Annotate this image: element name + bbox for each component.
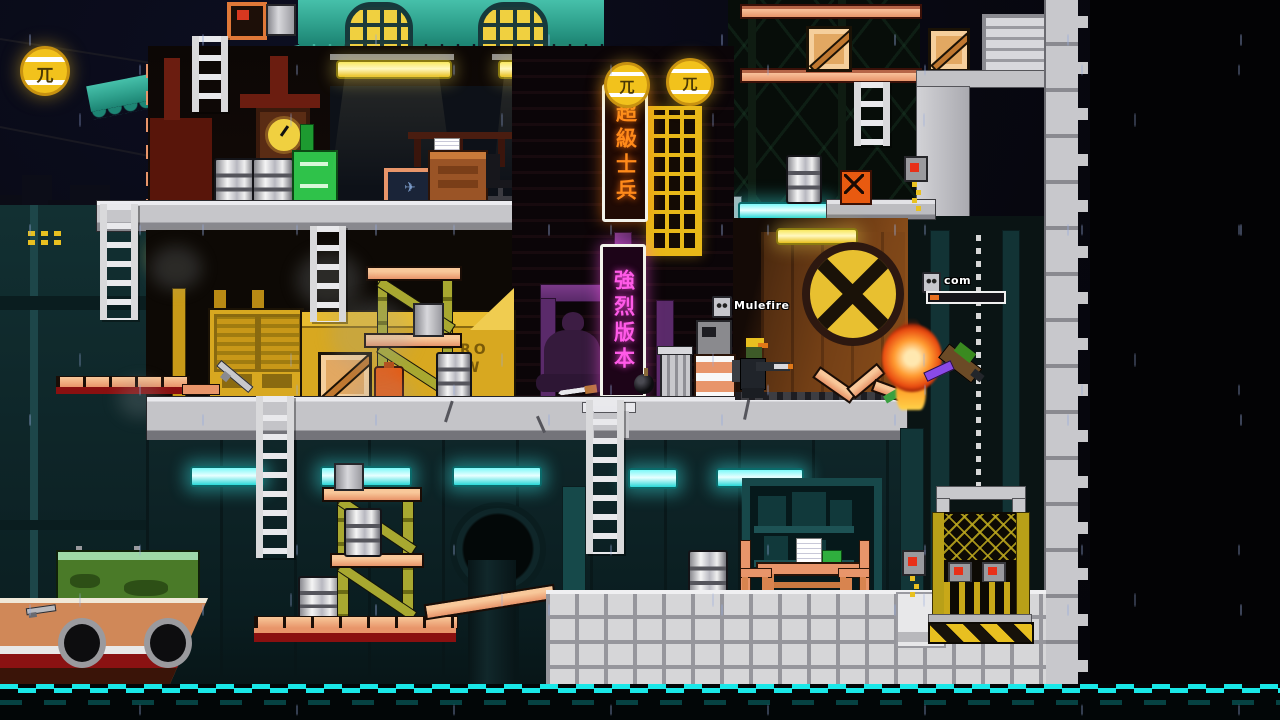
jerry-can <box>840 170 872 205</box>
vent-chimney <box>214 290 226 308</box>
boat <box>0 544 210 692</box>
desk <box>428 150 488 206</box>
rank-badge-icon <box>712 296 732 318</box>
cage-light-bezel <box>948 562 972 583</box>
explosion <box>882 324 942 392</box>
lantern-sign: 兀 <box>20 46 70 96</box>
player-legs <box>742 388 764 398</box>
ladder[interactable] <box>586 400 624 554</box>
cage-bars <box>944 582 1016 614</box>
ladder[interactable] <box>854 82 890 146</box>
ladder[interactable] <box>100 204 138 320</box>
desk-drawer <box>438 166 478 174</box>
rank-badge-icon <box>922 272 941 293</box>
clock-hand <box>280 125 289 137</box>
barrel <box>786 155 822 204</box>
deck-edge <box>0 598 208 603</box>
lattice-window <box>646 106 702 256</box>
lantern-glyph: 兀 <box>23 61 67 86</box>
red-button[interactable] <box>902 550 926 576</box>
stone-column <box>1044 0 1078 690</box>
shelf-box <box>758 496 786 526</box>
desk-drawer <box>438 180 478 188</box>
red-button-cap <box>908 557 917 566</box>
statue-head <box>562 312 584 332</box>
trash-bin <box>413 303 444 337</box>
drawer-handle <box>300 184 328 188</box>
player-nametag: Mulefire <box>734 299 789 312</box>
pagoda-roof-main <box>298 0 604 44</box>
jerry-can-x <box>844 174 864 194</box>
knife-blade <box>558 387 585 396</box>
slat-crate <box>982 14 1052 74</box>
round-x-window <box>802 242 904 346</box>
tarp-shadow <box>124 580 168 596</box>
salmon-platform <box>254 616 456 646</box>
cage-post <box>1016 512 1030 616</box>
red-pipe <box>270 56 288 98</box>
paper-stack <box>796 538 822 564</box>
floor-crack <box>444 401 469 428</box>
platform-underside <box>254 633 456 642</box>
crate <box>928 28 970 72</box>
bucket <box>334 463 364 491</box>
boat-wheel <box>58 618 106 668</box>
desk-top <box>430 152 486 159</box>
lit-windows <box>28 231 35 236</box>
neon-pink-text: 強烈版本 <box>613 269 634 373</box>
red-button[interactable] <box>904 156 928 182</box>
game-viewport: 兀 ✈ <box>0 0 1280 720</box>
lantern-sign: 兀 <box>666 58 714 106</box>
power-cable <box>0 126 147 157</box>
filing-cabinet <box>292 150 338 206</box>
lantern-glyph: 兀 <box>669 73 711 94</box>
scaffold-plank <box>366 266 462 281</box>
green-bottle <box>300 124 314 152</box>
appliance-screen <box>702 327 716 337</box>
glow-tube <box>190 466 264 487</box>
rooftop-pot <box>266 4 296 36</box>
red-button-cap <box>910 163 919 172</box>
glow-tube <box>452 466 542 487</box>
trash-lid <box>657 346 693 355</box>
wire-dots <box>912 182 917 187</box>
crate <box>806 26 852 72</box>
water-wave <box>0 700 1280 705</box>
cage-light-bezel <box>982 562 1006 583</box>
boat-wheel <box>144 618 192 668</box>
bomb-pickup[interactable] <box>634 370 656 396</box>
truss-post <box>748 0 756 232</box>
table-support <box>774 582 844 588</box>
airplane-glyph: ✈ <box>404 180 416 196</box>
stone-column-tabs <box>1076 16 1088 28</box>
bomb-ball <box>634 374 654 394</box>
floor-crack <box>536 411 557 434</box>
shelf-box <box>792 492 826 526</box>
shelf-board <box>754 526 854 533</box>
water-wave <box>0 688 1280 693</box>
rooftop-stove <box>227 2 267 40</box>
wire-dots <box>910 576 915 581</box>
locker-door <box>258 314 302 372</box>
stove-ember <box>237 10 249 20</box>
barrel <box>214 158 256 206</box>
bar-counter <box>694 354 736 402</box>
player-gun-tip <box>788 364 793 369</box>
player-nametag: com <box>944 274 971 287</box>
health-bar-fill <box>930 295 939 300</box>
drawer-handle <box>300 162 328 166</box>
void-right <box>1090 0 1280 688</box>
hazard-stripes <box>928 622 1034 644</box>
tarp-shadow <box>70 574 100 588</box>
bomb-fuse <box>644 368 648 376</box>
barrel <box>344 508 382 557</box>
locker-vent <box>262 374 292 388</box>
ladder[interactable] <box>192 36 228 112</box>
player-sprite-mulefire <box>732 338 792 400</box>
floor-crack <box>743 400 762 423</box>
barrel <box>252 158 294 206</box>
knife-handle <box>584 384 597 394</box>
tarp-highlight <box>58 552 198 560</box>
railing-post <box>414 139 421 167</box>
lantern-sign: 兀 <box>604 62 650 108</box>
shelf-box <box>830 500 852 526</box>
cage-red-light <box>988 567 997 575</box>
trash-can <box>660 350 692 402</box>
cage-red-light <box>954 567 963 575</box>
neon-orange-text: 超級士兵 <box>615 101 636 205</box>
cage-mesh <box>944 514 1016 560</box>
ladder[interactable] <box>256 396 294 558</box>
facade-band <box>0 520 146 530</box>
lantern-glyph: 兀 <box>607 76 647 97</box>
barrel <box>436 352 472 400</box>
clock-face <box>265 116 303 154</box>
platform-finger <box>182 384 220 395</box>
girder-beam <box>740 4 922 19</box>
red-pipe <box>164 58 180 120</box>
health-bar <box>926 291 1006 304</box>
red-machine <box>150 118 212 202</box>
glow-tube <box>628 468 678 489</box>
sewer-pipe <box>468 560 516 688</box>
elevator-cage[interactable] <box>932 512 1028 614</box>
smoke-puff <box>150 246 202 290</box>
ladder[interactable] <box>310 226 346 322</box>
